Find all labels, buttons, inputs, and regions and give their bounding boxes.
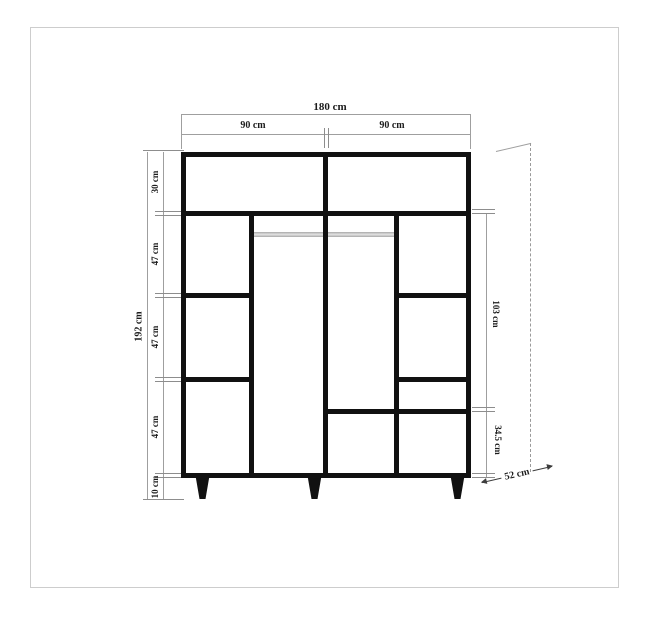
dim-total-width-label: 180 cm <box>300 102 360 113</box>
tick-left-47b <box>155 297 184 298</box>
dim-left-half-label: 90 cm <box>223 121 283 131</box>
depth-arrow-right-icon <box>532 466 552 472</box>
diagram-canvas: 180 cm 90 cm 90 cm 192 cm 30 cm 47 cm 47… <box>0 0 650 619</box>
dim-line-height-segments <box>163 152 164 499</box>
extension-line-top-right <box>470 114 471 149</box>
depth-dashed-line <box>530 143 531 472</box>
right-column-divider <box>394 211 399 475</box>
center-divider <box>323 155 328 475</box>
tick-right-mid-b <box>472 411 495 412</box>
dim-seg-47c-label: 47 cm <box>151 405 163 449</box>
dim-right-half-label: 90 cm <box>362 121 422 131</box>
depth-arrow-left-icon <box>482 478 502 484</box>
dim-line-right-sections <box>486 213 487 477</box>
right-column-shelf-2 <box>397 377 468 382</box>
left-column-shelf-1 <box>184 293 252 298</box>
tick-left-47d <box>155 381 184 382</box>
right-half-bottom-divider <box>323 409 468 414</box>
dim-total-height-label: 192 cm <box>135 299 148 355</box>
tick-left-30a <box>155 211 184 212</box>
tick-top-center-1 <box>324 128 325 148</box>
tick-top-center-2 <box>328 128 329 148</box>
hanging-rail-left <box>254 232 323 237</box>
dim-right-lower-label: 34.5 cm <box>490 416 502 464</box>
dim-seg-47b-label: 47 cm <box>151 315 163 359</box>
dim-right-upper-label: 103 cm <box>488 290 500 338</box>
right-column-shelf-1 <box>397 293 468 298</box>
tick-left-30b <box>155 215 184 216</box>
tick-right-top-b <box>472 213 495 214</box>
left-column-divider <box>249 211 254 475</box>
tick-left-47c <box>155 377 184 378</box>
left-column-shelf-2 <box>184 377 252 382</box>
tick-right-top-a <box>472 209 495 210</box>
dim-line-total-width <box>181 114 471 115</box>
dim-seg-30-label: 30 cm <box>151 160 163 204</box>
dim-seg-10-label: 10 cm <box>151 465 163 509</box>
tick-left-top <box>143 150 184 151</box>
tick-left-47a <box>155 293 184 294</box>
extension-line-top-left <box>181 114 182 149</box>
hanging-rail-right <box>328 232 394 237</box>
tick-left-bottom <box>143 499 184 500</box>
dim-seg-47a-label: 47 cm <box>151 232 163 276</box>
dim-line-half-widths <box>181 134 471 135</box>
tick-right-mid-a <box>472 407 495 408</box>
